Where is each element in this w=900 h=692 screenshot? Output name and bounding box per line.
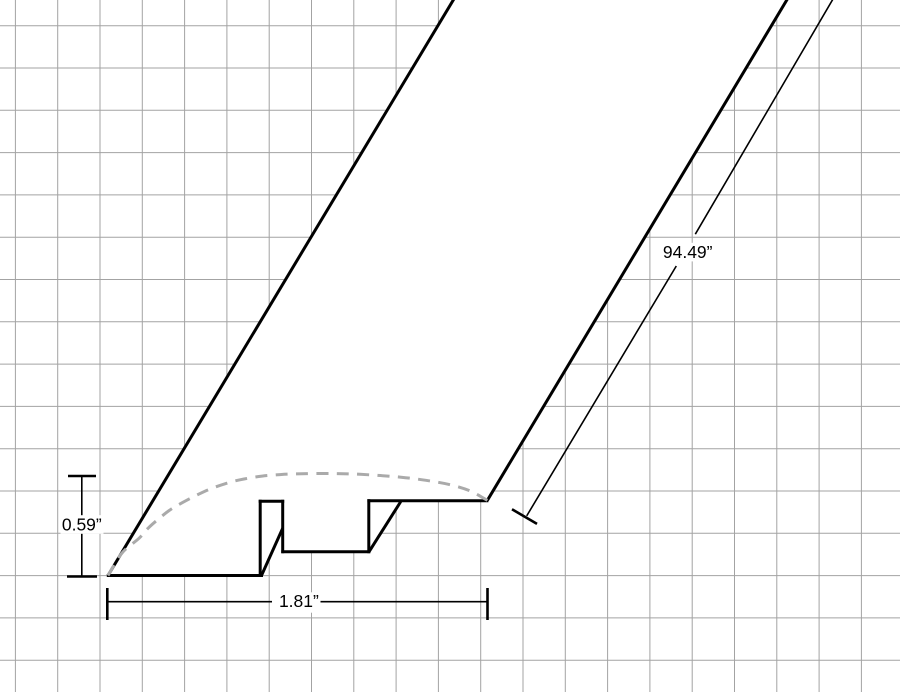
- svg-text:94.49”: 94.49”: [663, 242, 713, 262]
- svg-text:0.59”: 0.59”: [62, 515, 102, 535]
- svg-text:1.81”: 1.81”: [279, 591, 319, 611]
